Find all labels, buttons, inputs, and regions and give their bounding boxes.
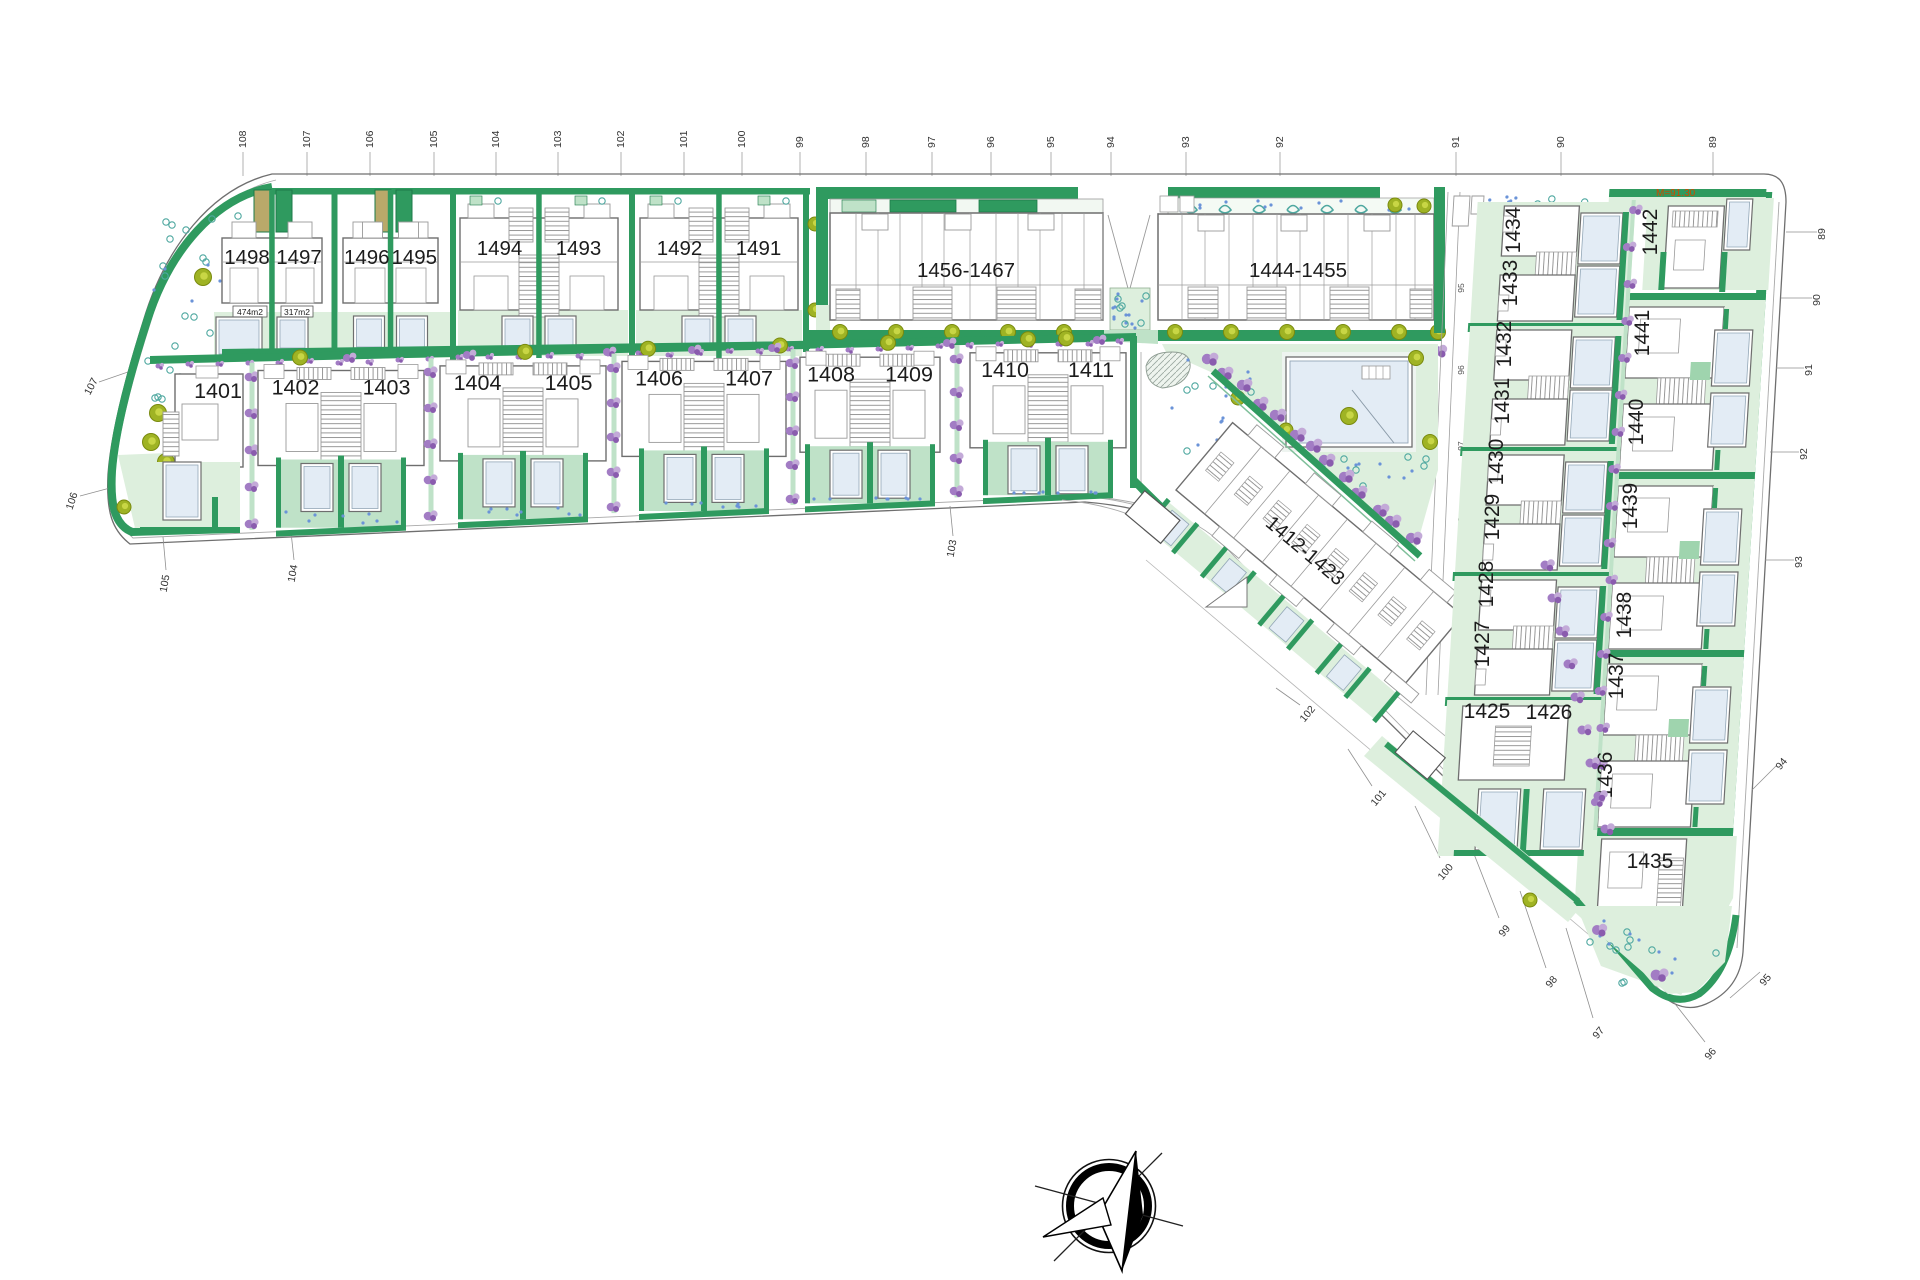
svg-text:1491: 1491 bbox=[736, 237, 782, 260]
svg-text:1408: 1408 bbox=[807, 362, 855, 386]
svg-text:1426: 1426 bbox=[1526, 701, 1573, 724]
svg-text:106: 106 bbox=[364, 130, 376, 148]
svg-text:93: 93 bbox=[1793, 556, 1805, 568]
svg-text:1433: 1433 bbox=[1499, 260, 1522, 307]
svg-text:96: 96 bbox=[985, 136, 997, 148]
svg-text:95: 95 bbox=[1045, 136, 1057, 148]
svg-text:103: 103 bbox=[552, 130, 564, 148]
svg-text:1407: 1407 bbox=[725, 366, 773, 390]
svg-text:1403: 1403 bbox=[363, 375, 411, 399]
svg-text:1406: 1406 bbox=[635, 366, 683, 390]
svg-text:1495: 1495 bbox=[391, 246, 437, 269]
svg-text:1409: 1409 bbox=[885, 362, 933, 386]
svg-text:1431: 1431 bbox=[1491, 378, 1514, 425]
svg-text:1492: 1492 bbox=[657, 237, 703, 260]
svg-text:1435: 1435 bbox=[1627, 850, 1674, 873]
svg-text:1497: 1497 bbox=[276, 246, 322, 269]
svg-text:1437: 1437 bbox=[1605, 653, 1628, 700]
svg-text:1410: 1410 bbox=[981, 358, 1029, 382]
svg-text:474m2: 474m2 bbox=[237, 307, 263, 317]
svg-text:1427: 1427 bbox=[1471, 621, 1494, 668]
svg-text:1444-1455: 1444-1455 bbox=[1249, 259, 1347, 282]
svg-text:1434: 1434 bbox=[1502, 206, 1525, 253]
svg-text:1428: 1428 bbox=[1475, 561, 1498, 608]
svg-text:99: 99 bbox=[794, 136, 806, 148]
svg-text:1402: 1402 bbox=[272, 375, 320, 399]
svg-text:90: 90 bbox=[1555, 136, 1567, 148]
svg-text:1442: 1442 bbox=[1639, 209, 1662, 256]
svg-text:1429: 1429 bbox=[1481, 494, 1504, 541]
svg-text:92: 92 bbox=[1798, 448, 1810, 460]
svg-text:95: 95 bbox=[1456, 283, 1466, 293]
svg-text:1411: 1411 bbox=[1068, 358, 1114, 382]
svg-text:107: 107 bbox=[301, 130, 313, 148]
svg-text:101: 101 bbox=[678, 130, 690, 148]
svg-text:96: 96 bbox=[1456, 365, 1466, 375]
svg-text:91: 91 bbox=[1803, 364, 1815, 376]
svg-text:1441: 1441 bbox=[1631, 310, 1654, 357]
svg-text:1456-1467: 1456-1467 bbox=[917, 259, 1015, 282]
svg-text:91: 91 bbox=[1450, 136, 1462, 148]
svg-text:108: 108 bbox=[237, 130, 249, 148]
svg-text:89: 89 bbox=[1816, 228, 1828, 240]
svg-text:94: 94 bbox=[1105, 136, 1117, 148]
svg-text:1494: 1494 bbox=[477, 237, 523, 260]
svg-text:89: 89 bbox=[1707, 136, 1719, 148]
svg-text:1498: 1498 bbox=[224, 246, 270, 269]
svg-text:1493: 1493 bbox=[556, 237, 602, 260]
svg-text:100: 100 bbox=[736, 130, 748, 148]
svg-text:1425: 1425 bbox=[1464, 700, 1511, 723]
svg-text:102: 102 bbox=[615, 130, 627, 148]
svg-text:104: 104 bbox=[490, 130, 502, 148]
svg-text:1404: 1404 bbox=[454, 371, 502, 395]
svg-text:105: 105 bbox=[428, 130, 440, 148]
svg-text:1405: 1405 bbox=[545, 371, 593, 395]
svg-text:1430: 1430 bbox=[1485, 439, 1508, 486]
svg-text:98: 98 bbox=[860, 136, 872, 148]
svg-text:1439: 1439 bbox=[1619, 483, 1642, 530]
svg-text:1432: 1432 bbox=[1493, 321, 1516, 368]
svg-text:1401: 1401 bbox=[194, 379, 242, 403]
svg-text:90: 90 bbox=[1811, 294, 1823, 306]
svg-text:92: 92 bbox=[1274, 136, 1286, 148]
svg-text:97: 97 bbox=[926, 136, 938, 148]
svg-text:1496: 1496 bbox=[344, 246, 390, 269]
svg-text:317m2: 317m2 bbox=[284, 307, 310, 317]
svg-text:1438: 1438 bbox=[1613, 592, 1636, 639]
svg-text:1440: 1440 bbox=[1625, 399, 1648, 446]
svg-text:93: 93 bbox=[1180, 136, 1192, 148]
svg-text:M=91.30: M=91.30 bbox=[1656, 188, 1696, 199]
